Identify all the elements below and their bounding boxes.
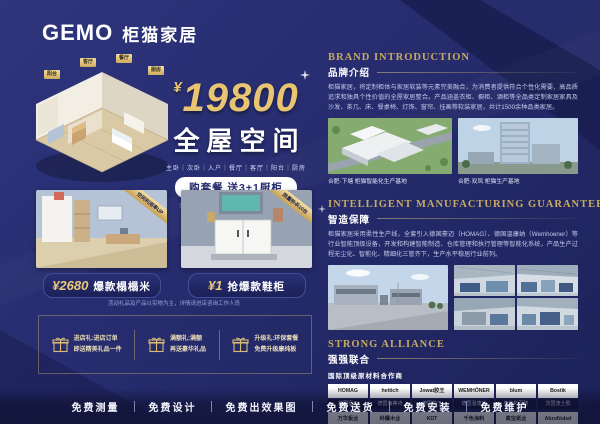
gift-text: 升级礼:环保套餐 免费升级康纯板 [254,334,298,354]
workshop-illustration [454,265,515,297]
tatami-price: ¥2680 [52,278,88,293]
alliance-subtitle: 国际顶级原材料合作商 [328,370,578,380]
product-card-tatami: 空间利用率UP ¥2680爆款榻榻米 [36,190,167,298]
hero-title: 全屋空间 [160,121,312,158]
info-column: BRAND INTRODUCTION 品牌介绍 柜猫家居，将定制柜体与家居软装等… [328,52,578,424]
factory-aerial-illustration [328,118,452,174]
hq-tower-illustration [458,118,578,174]
campus-photo [328,265,448,330]
room-label-tag: 阳台 [44,70,60,79]
gift-line2: 再送豪华礼品 [170,345,206,355]
sparkle-icon [318,205,326,213]
gift-icon [148,336,165,353]
photo-caption: 合肥·双凤 柜猫生产基地 [458,176,578,185]
service-divider [466,401,467,412]
service-divider [312,401,313,412]
service-item: 免费送货 [327,399,375,414]
shoe-cabinet-label: 抢爆款鞋柜 [227,281,285,293]
service-item: 免费安装 [404,399,452,414]
service-item: 免费设计 [149,399,197,414]
gift-item-entry: 进店礼:进店订单 即送精美礼品一件 [52,334,122,354]
workshop-illustration [517,265,578,297]
brand-intro-body: 柜猫家居，将定制柜体与家居软装等元素完美融合，为消费者提供符合个性化需要、高品质… [328,83,578,113]
room-label-tag: 餐厅 [116,54,132,63]
service-divider [211,401,212,412]
section-divider [377,218,578,219]
gift-item-amount: 满额礼:满额 再送豪华礼品 [148,334,206,354]
workshop-illustration [517,298,578,330]
tatami-price-pill: ¥2680爆款榻榻米 [43,273,161,298]
gift-text: 满额礼:满额 再送豪华礼品 [170,334,206,354]
brand-logo-chinese: 柜猫家居 [122,21,198,46]
section-title-cn: 强强联合 [328,352,370,366]
services-bar: 免费测量 免费设计 免费出效果图 免费送货 免费安装 免费维护 [0,388,600,424]
photo-caption: 合肥·下塘 柜猫智能化生产基地 [328,176,452,185]
section-title-en: INTELLIGENT MANUFACTURING GUARANTEE [328,199,578,210]
room-list: 主卧｜次卧｜入户｜餐厅｜客厅｜阳台｜厨房 [160,163,312,172]
gift-icon [52,336,69,353]
gift-line1: 满额礼:满额 [170,334,206,344]
manufacturing-body: 柜猫家居采用柔性生产线，全套引入德国豪迈（HOMAG）、德国温康纳（Wemhoe… [328,230,578,260]
workshop-photo [517,298,578,330]
section-brand-intro: BRAND INTRODUCTION 品牌介绍 柜猫家居，将定制柜体与家居软装等… [328,52,578,185]
workshop-photo-grid [454,265,578,330]
shoe-cabinet-price-pill: ¥1抢爆款鞋柜 [188,273,306,298]
section-title-cn: 品牌介绍 [328,65,370,79]
product-card-shoe-cabinet: 限量秒杀10台 ¥1抢爆款鞋柜 [181,190,312,298]
gift-divider [219,330,220,360]
brand-logo-text: GEMO [42,20,113,46]
hq-tower-photo [458,118,578,174]
section-title-en: BRAND INTRODUCTION [328,52,578,63]
room-label-tag: 客厅 [80,58,96,67]
section-manufacturing: INTELLIGENT MANUFACTURING GUARANTEE 智造保障… [328,199,578,330]
gift-strip: 进店礼:进店订单 即送精美礼品一件 满额礼:满额 再送豪华礼品 [38,315,312,374]
cards-disclaimer: 活动礼品及产品以实物为主，详情请进店咨询工作人员 [36,299,312,307]
section-title-cn: 智造保障 [328,212,370,226]
gift-item-upgrade: 升级礼:环保套餐 免费升级康纯板 [232,334,298,354]
service-divider [389,401,390,412]
room-render: 阳台 客厅 餐厅 厨房 [28,48,176,198]
product-cards: 空间利用率UP ¥2680爆款榻榻米 [36,190,312,298]
gift-divider [134,330,135,360]
gift-icon [232,336,249,353]
gift-line1: 升级礼:环保套餐 [254,334,298,344]
currency-symbol: ¥ [173,79,181,96]
shoe-cabinet-photo: 限量秒杀10台 [181,190,312,268]
section-title-en: STRONG ALLIANCE [328,339,578,350]
workshop-photo [454,265,515,297]
section-divider [377,358,578,359]
brand-logo: GEMO 柜猫家居 [42,20,198,46]
flyer-page: GEMO 柜猫家居 阳台 客厅 餐厅 厨房 ¥19800 [0,0,600,424]
gift-line1: 进店礼:进店订单 [74,334,122,344]
room-label-tag: 厨房 [148,66,164,75]
tatami-photo: 空间利用率UP [36,190,167,268]
shoe-cabinet-price: ¥1 [208,278,222,293]
price: ¥19800 [160,78,312,118]
service-item: 免费出效果图 [226,399,298,414]
tatami-label: 爆款榻榻米 [93,281,151,293]
service-item: 免费维护 [481,399,529,414]
gift-text: 进店礼:进店订单 即送精美礼品一件 [74,334,122,354]
workshop-photo [454,298,515,330]
gift-line2: 免费升级康纯板 [254,345,298,355]
price-value: 19800 [183,76,299,120]
section-divider [377,72,578,73]
service-item: 免费测量 [72,399,120,414]
workshop-photo [517,265,578,297]
campus-illustration [328,265,448,330]
workshop-illustration [454,298,515,330]
factory-aerial-photo [328,118,452,174]
gift-line2: 即送精美礼品一件 [74,345,122,355]
service-divider [134,401,135,412]
